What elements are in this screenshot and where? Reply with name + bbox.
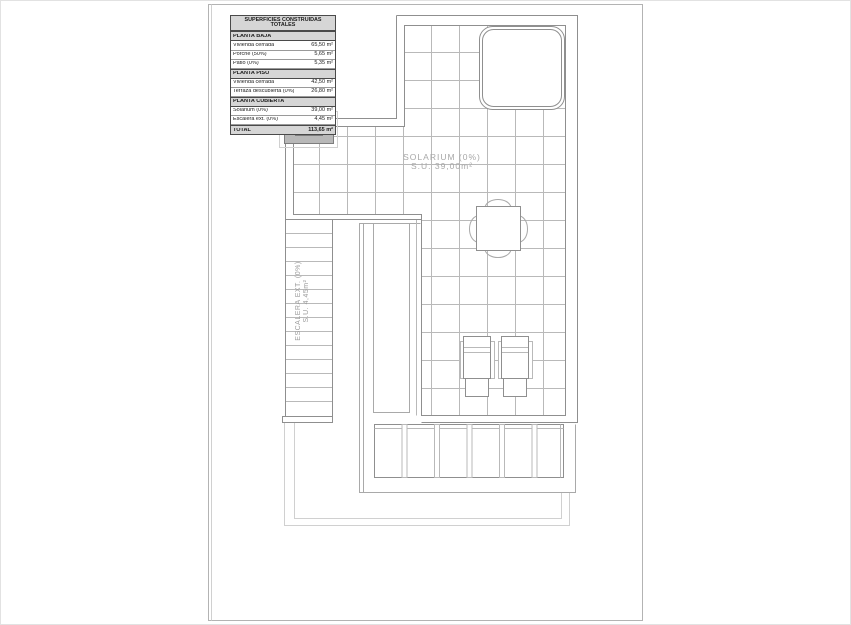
row-label: Terraza descubierta (0%) <box>233 89 294 95</box>
skylight-outer <box>480 27 565 110</box>
row-value: 113,65 m² <box>308 128 333 134</box>
table-row-total: TOTAL 113,65 m² <box>231 125 335 134</box>
row-label: PLANTA PISO <box>233 71 269 77</box>
table-row-section: PLANTA CUBIERTA <box>231 97 335 107</box>
lounger-back <box>464 337 491 379</box>
table-row: Patio (0%) 5,35 m² <box>231 60 335 69</box>
stair-bottom-step <box>283 417 333 423</box>
row-value: 26,80 m² <box>311 89 333 95</box>
table-row-section: PLANTA BAJA <box>231 31 335 41</box>
solarium-area-label: S.U. 39,00m² <box>411 161 473 171</box>
row-label: PLANTA BAJA <box>233 34 271 40</box>
surface-table-title: SUPERFICIES CONSTRUIDAS TOTALES <box>231 16 335 31</box>
drawing-sheet: SOLARIUM (0%) S.U. 39,00m² ESCALERA EXT.… <box>0 0 851 625</box>
row-label: Vivienda cerrada <box>233 43 274 49</box>
lounger-seat <box>504 379 527 397</box>
row-label: Vivienda cerrada <box>233 80 274 86</box>
row-label: Patio (0%) <box>233 61 259 67</box>
row-label: Escalera ext. (0%) <box>233 117 278 123</box>
pergola-beam <box>532 425 537 478</box>
table-row: Vivienda cerrada 65,50 m² <box>231 41 335 50</box>
table-row: Solarium (0%) 39,00 m² <box>231 107 335 116</box>
row-value: 42,50 m² <box>311 80 333 86</box>
row-value: 4,45 m² <box>314 117 333 123</box>
stairs-area-label: S.U. 4,45m² <box>303 279 310 322</box>
row-label: Porche (50%) <box>233 52 267 58</box>
table-row: Terraza descubierta (0%) 26,80 m² <box>231 88 335 97</box>
table-row: Escalera ext. (0%) 4,45 m² <box>231 116 335 125</box>
row-value: 39,00 m² <box>311 108 333 114</box>
pergola-beam <box>435 425 440 478</box>
table-row-section: PLANTA PISO <box>231 69 335 79</box>
table-row: Porche (50%) 5,65 m² <box>231 51 335 60</box>
lounger-seat <box>466 379 489 397</box>
roof-plan-drawing: SOLARIUM (0%) S.U. 39,00m² ESCALERA EXT.… <box>1 1 851 625</box>
pergola-beam <box>402 425 407 478</box>
stairs-label: ESCALERA EXT. (0%) <box>295 261 302 340</box>
row-label: PLANTA CUBIERTA <box>233 99 284 105</box>
pergola-beam <box>500 425 505 478</box>
row-value: 5,65 m² <box>314 52 333 58</box>
lounger-back <box>502 337 529 379</box>
dining-set <box>470 200 528 258</box>
pergola-beam <box>467 425 472 478</box>
table-row: Vivienda cerrada 42,50 m² <box>231 79 335 88</box>
surface-table: SUPERFICIES CONSTRUIDAS TOTALES PLANTA B… <box>230 15 336 135</box>
table-top <box>477 207 521 251</box>
row-value: 65,50 m² <box>311 43 333 49</box>
row-value: 5,35 m² <box>314 61 333 67</box>
row-label: Solarium (0%) <box>233 108 268 114</box>
row-label: TOTAL <box>233 128 251 134</box>
